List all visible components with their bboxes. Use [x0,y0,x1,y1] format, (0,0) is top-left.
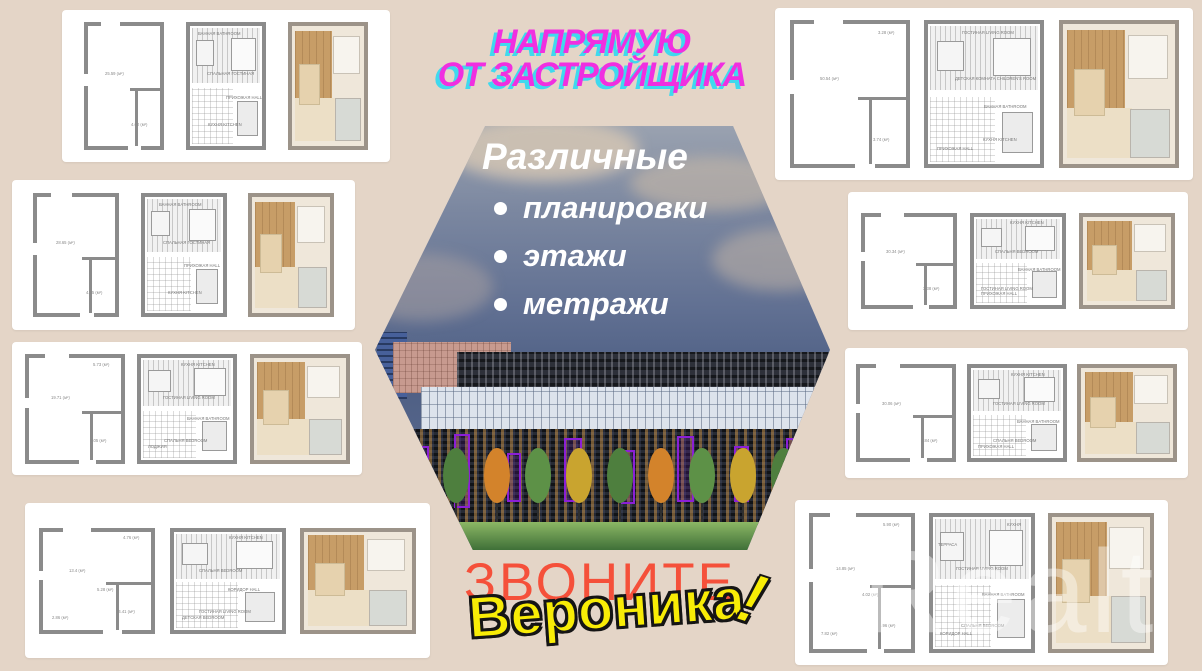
plan-detail-rbed [333,36,359,74]
bullet-label: этажи [523,238,627,274]
room-label: ВАННАЯ BATHROOM [187,417,229,421]
plan-detail-tf1 [236,541,273,568]
plan-detail-rsofa [315,563,345,596]
plan-detail-rsofa [1090,397,1116,428]
room-label: ВАННАЯ BATHROOM [159,203,201,207]
plan-detail-tf1 [1024,377,1055,402]
plan-detail-tf3 [151,211,170,236]
floorplan-card: 30.34 (м²)3.38 (м²)СПАЛЬНЯ BEDROOMГОСТИН… [848,192,1188,330]
plan-detail-rbath [335,98,361,141]
plan-detail-ostub [33,243,37,255]
floorplan-technical: СПАЛЬНАЯ ГОСТИНАЯКУХНЯ KITCHENВАННАЯ BAT… [141,193,227,317]
room-label: КУХНЯ KITCHEN [229,536,263,540]
floorplan-render [1077,364,1177,462]
area-label: 3.74 (м²) [873,138,889,142]
plan-detail-rsofa [299,64,320,104]
floorplan-card: 30.06 (м²)2.84 (м²)ГОСТИНАЯ LIVING ROOMС… [845,348,1188,478]
plan-detail-tf1 [189,209,216,241]
area-label: 3.38 (м²) [923,287,939,291]
tree [771,448,797,533]
plan-detail-ow2 [916,263,953,266]
floorplan-technical: ГОСТИНАЯ LIVING ROOMСПАЛЬНЯ BEDROOMКУХНЯ… [137,354,237,464]
plan-detail-ow2 [130,88,160,91]
plan-detail-ow2 [870,585,911,588]
room-label: ДЕТСКАЯ BEDROOM [182,616,224,620]
plan-detail-on1 [45,354,69,358]
bullet-item: планировки [480,190,810,226]
room-label: КУХНЯ KITCHEN [168,291,202,295]
floorplan-card: 14.85 (м²)5.96 (м²)5.90 (м²)4.02 (м²)7.8… [795,500,1168,665]
plan-detail-ostub [809,569,813,582]
cloud [348,253,494,321]
floorplan-card: 25.59 (м²)4.60 (м²)СПАЛЬНАЯ ГОСТИНАЯКУХН… [62,10,390,162]
plan-detail-rbath [1111,596,1146,643]
floorplan-technical: СПАЛЬНЯ BEDROOMГОСТИНАЯ LIVING ROOMКУХНЯ… [170,528,286,634]
plan-detail-rsofa [1062,559,1089,603]
floorplan-card: 13.4 (м²)14.41 (м²)4.76 (м²)5.28 (м²)2.8… [25,503,430,658]
plan-detail-ow2 [82,411,121,414]
room-label: ДЕТСКАЯ КОМНАТА CHILDREN'S ROOM [955,77,1036,81]
plan-detail-rbed [307,366,340,399]
tree [730,448,756,533]
floorplan-render [1048,513,1154,653]
plan-detail-ow1 [878,585,881,648]
plan-detail-rbed [1134,375,1167,404]
plan-detail-tf2 [245,592,275,621]
area-label: 4.60 (м²) [131,123,147,127]
plan-detail-rbed [297,206,326,243]
area-label: 30.34 (м²) [886,250,905,254]
room-label: ПРИХОЖАЯ HALL [978,445,1014,449]
plan-detail-rbath [369,590,408,625]
tree [566,448,592,533]
area-label: 2.86 (м²) [52,616,68,620]
area-label: 19.71 (м²) [51,396,70,400]
plan-detail-rbath [309,419,342,456]
tree [443,448,469,533]
floorplan-card: 28.65 (м²)4.95 (м²)СПАЛЬНАЯ ГОСТИНАЯКУХН… [12,180,355,330]
plan-detail-on1 [51,193,71,197]
plan-detail-on2 [128,146,141,150]
area-label: 14.41 (м²) [116,610,135,614]
room-label: ВАННАЯ BATHROOM [1018,268,1060,272]
floorplan-render [300,528,416,634]
plan-detail-on1 [814,20,843,24]
plan-detail-on2 [103,630,122,634]
plan-detail-tf1 [231,38,256,71]
plan-detail-on2 [855,164,875,168]
room-label: СПАЛЬНЯ BEDROOM [199,569,242,573]
area-label: 50.54 (м²) [820,77,839,81]
plan-detail-ow1 [924,263,927,305]
room-label: ПРИХОЖАЯ HALL [226,96,262,100]
room-label: ВАННАЯ BATHROOM [1017,420,1059,424]
plan-detail-ow2 [82,257,115,260]
floorplan-outline: 30.06 (м²)2.84 (м²) [856,364,956,462]
plan-detail-tf3 [978,379,1000,399]
room-label: ГОСТИНАЯ LIVING ROOM [199,610,251,614]
plan-detail-ostub [856,404,860,413]
plan-detail-ow2 [106,582,151,585]
room-label: ГОСТИНАЯ LIVING ROOM [163,396,215,400]
promo-poster: НАПРЯМУЮ ОТ ЗАСТРОЙЩИКА [0,0,1202,671]
tree [525,448,551,533]
plan-detail-tf2 [196,269,218,303]
area-label: 3.28 (м²) [878,31,894,35]
room-label: ВАННАЯ BATHROOM [984,105,1026,109]
plan-detail-rsofa [263,390,289,425]
plan-detail-on2 [910,458,927,462]
area-label: 4.76 (м²) [123,536,139,540]
plan-detail-tf2 [1032,271,1057,298]
floorplan-outline: 14.85 (м²)5.96 (м²)5.90 (м²)4.02 (м²)7.8… [809,513,915,653]
room-label: ТЕРРАСА [938,543,957,547]
plan-detail-rbath [1136,270,1168,302]
area-label: 4.05 (м²) [90,439,106,443]
floorplan-render [1059,20,1179,168]
plan-detail-tf2 [237,101,258,137]
room-label: ПРИХОЖАЯ HALL [184,264,220,268]
room-label: СПАЛЬНЯ BEDROOM [993,439,1036,443]
area-label: 5.90 (м²) [883,523,899,527]
plan-detail-tf1 [1025,226,1055,251]
room-label: ЛОДЖИЯ [148,445,167,449]
room-label: ВАННАЯ BATHROOM [198,32,240,36]
room-label: КУХНЯ KITCHEN [181,363,215,367]
plan-detail-rsofa [1074,69,1105,116]
plan-detail-tf2 [1031,424,1057,451]
room-label: КУХНЯ [1007,523,1021,527]
area-label: 13.4 (м²) [69,569,85,573]
plan-detail-tf2 [1002,112,1033,153]
tree [648,448,674,533]
plan-detail-on1 [63,528,91,532]
floorplan-render [1079,213,1175,309]
tagline-line2: ОТ ЗАСТРОЙЩИКА [400,59,784,92]
room-label: СПАЛЬНАЯ ГОСТИНАЯ [207,72,254,76]
bullet-dot-icon [494,202,507,215]
plan-detail-tf1 [194,368,225,397]
tagline-line1: НАПРЯМУЮ [400,26,784,59]
plan-detail-ow2 [858,97,905,100]
plan-detail-tf2 [202,421,228,452]
floorplan-render [248,193,334,317]
plan-detail-ow1 [90,411,93,460]
floorplan-outline: 13.4 (м²)14.41 (м²)4.76 (м²)5.28 (м²)2.8… [39,528,155,634]
floorplan-render [288,22,368,150]
area-label: 5.28 (м²) [97,588,113,592]
building-upper-floors [457,352,830,392]
room-label: СПАЛЬНЯ BEDROOM [995,250,1038,254]
header-tagline: НАПРЯМУЮ ОТ ЗАСТРОЙЩИКА [400,26,784,92]
plan-detail-ow1 [869,97,872,164]
room-label: СПАЛЬНЯ BEDROOM [164,439,207,443]
plan-detail-tf3 [196,40,214,66]
plan-detail-ostub [39,571,43,581]
plan-detail-rbed [367,539,406,570]
plan-detail-on2 [867,649,885,653]
bullet-dot-icon [494,250,507,263]
room-label: ВАННАЯ BATHROOM [982,593,1024,597]
room-label: ГОСТИНАЯ LIVING ROOM [981,287,1033,291]
plan-detail-on1 [881,213,904,217]
plan-detail-ow1 [116,582,119,629]
floorplan-technical: СПАЛЬНЯ BEDROOMГОСТИНАЯ LIVING ROOMКУХНЯ… [970,213,1066,309]
plan-detail-on2 [80,313,94,317]
plan-detail-rbath [1136,422,1169,455]
room-label: КУХНЯ KITCHEN [1010,221,1044,225]
room-label: КОРИДОР HALL [228,588,260,592]
plan-detail-tf3 [182,543,208,565]
floorplan-card: 19.71 (м²)4.05 (м²)5.73 (м²)ГОСТИНАЯ LIV… [12,342,362,475]
plan-detail-rbath [298,267,327,308]
plan-detail-rbed [1109,527,1144,569]
plan-detail-on2 [79,460,96,464]
plan-detail-on1 [101,22,120,26]
floorplan-technical: ДЕТСКАЯ КОМНАТА CHILDREN'S ROOMКУХНЯ KIT… [924,20,1044,168]
plan-detail-on1 [876,364,900,368]
plan-detail-ostub [861,252,865,261]
floorplan-render [250,354,350,464]
floorplan-technical: ГОСТИНАЯ LIVING ROOMСПАЛЬНЯ BEDROOMКУХНЯ… [929,513,1035,653]
area-label: 28.65 (м²) [56,241,75,245]
floorplan-outline: 28.65 (м²)4.95 (м²) [33,193,119,317]
bullet-label: метражи [523,286,669,322]
area-label: 30.06 (м²) [882,402,901,406]
plan-detail-tf3 [937,41,964,71]
area-label: 7.82 (м²) [821,632,837,636]
plan-detail-ostub [84,74,88,86]
plan-detail-rsofa [260,234,282,273]
plan-detail-ow1 [921,415,924,458]
room-label: ГОСТИНАЯ LIVING ROOM [962,31,1014,35]
room-label: ГОСТИНАЯ LIVING ROOM [993,402,1045,406]
plan-detail-ostub [790,80,794,94]
room-label: КУХНЯ KITCHEN [208,123,242,127]
plan-detail-rbed [1134,224,1166,252]
area-label: 25.59 (м²) [105,72,124,76]
tree [689,448,715,533]
tree [607,448,633,533]
room-label: КОРИДОР HALL [940,632,972,636]
plan-detail-tf3 [981,228,1002,248]
plan-detail-ow2 [913,415,952,418]
area-label: 5.96 (м²) [879,624,895,628]
room-label: КУХНЯ KITCHEN [983,138,1017,142]
plan-detail-ostub [25,398,29,408]
area-label: 14.85 (м²) [836,567,855,571]
hexagon-title: Различные [482,136,810,178]
room-label: ГОСТИНАЯ LIVING ROOM [956,567,1008,571]
plan-detail-tf3 [148,370,170,392]
floorplan-outline: 25.59 (м²)4.60 (м²) [84,22,164,150]
bullet-dot-icon [494,298,507,311]
hexagon-text-overlay: Различные планировки этажи метражи [480,136,810,322]
lawn [375,522,830,550]
plan-detail-rbed [1128,35,1168,79]
plan-detail-tf1 [989,530,1022,566]
area-label: 4.02 (м²) [862,593,878,597]
area-label: 2.84 (м²) [921,439,937,443]
room-label: ПРИХОЖАЯ HALL [981,292,1017,296]
tree [484,448,510,533]
floorplan-card: 50.54 (м²)3.74 (м²)3.28 (м²)ДЕТСКАЯ КОМН… [775,8,1193,180]
plan-detail-on1 [830,513,855,517]
plan-detail-rsofa [1092,245,1117,275]
plan-detail-ow1 [89,257,92,313]
plan-detail-on2 [913,305,929,309]
bullet-item: метражи [480,286,810,322]
room-label: ПРИХОЖАЯ HALL [937,147,973,151]
plan-detail-ow1 [135,88,138,146]
floorplan-technical: СПАЛЬНАЯ ГОСТИНАЯКУХНЯ KITCHENВАННАЯ BAT… [186,22,266,150]
building-white-band [421,387,831,430]
room-label: СПАЛЬНЯ BEDROOM [961,624,1004,628]
area-label: 4.95 (м²) [86,291,102,295]
trees-row [375,448,830,533]
floorplan-technical: ГОСТИНАЯ LIVING ROOMСПАЛЬНЯ BEDROOMКУХНЯ… [967,364,1067,462]
floorplan-outline: 30.34 (м²)3.38 (м²) [861,213,957,309]
room-label: КУХНЯ KITCHEN [1011,373,1045,377]
room-label: СПАЛЬНАЯ ГОСТИНАЯ [163,241,210,245]
plan-detail-rbath [1130,109,1170,159]
area-label: 5.73 (м²) [93,363,109,367]
plan-detail-tf2 [997,599,1024,638]
plan-detail-tf1 [993,38,1031,76]
bullet-item: этажи [480,238,810,274]
bullet-label: планировки [523,190,707,226]
floorplan-outline: 19.71 (м²)4.05 (м²)5.73 (м²) [25,354,125,464]
